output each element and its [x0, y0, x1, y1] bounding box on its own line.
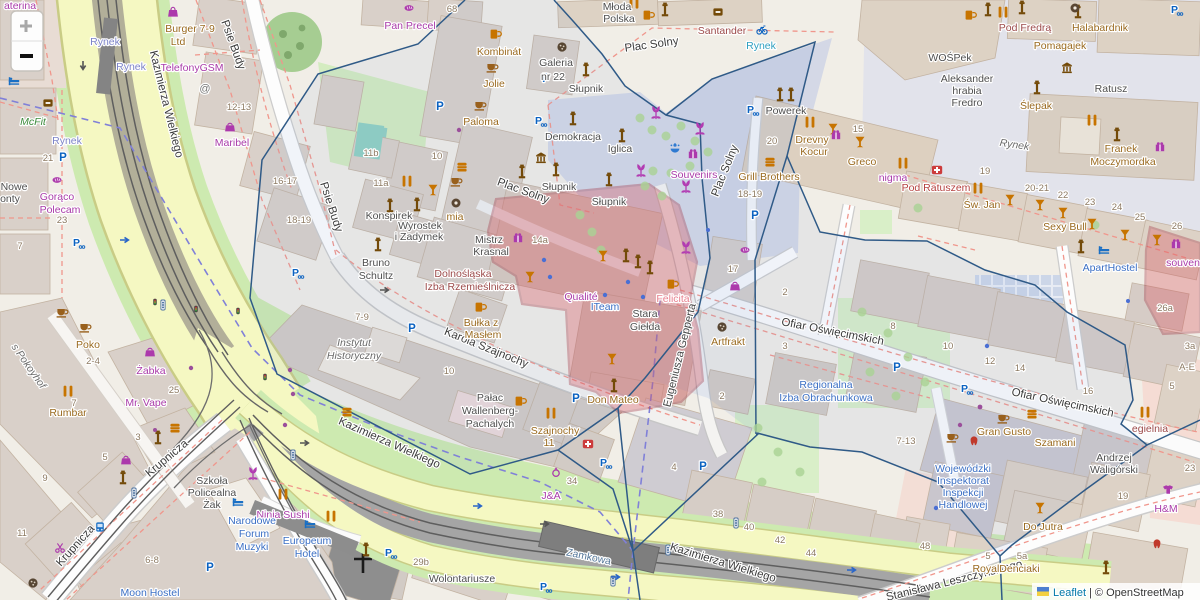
svg-text:Grill Brothers: Grill Brothers	[738, 171, 799, 183]
svg-text:5: 5	[985, 551, 990, 562]
svg-text:Santander: Santander	[698, 25, 747, 37]
svg-text:Żabka: Żabka	[136, 364, 165, 377]
svg-text:6-8: 6-8	[145, 555, 159, 566]
svg-text:Jolie: Jolie	[483, 78, 505, 90]
svg-text:Poko: Poko	[76, 339, 100, 351]
svg-text:7-13: 7-13	[896, 436, 915, 447]
svg-text:Kombinát: Kombinát	[477, 46, 521, 58]
svg-text:Paloma: Paloma	[463, 116, 499, 128]
svg-text:3a: 3a	[1185, 341, 1196, 352]
svg-text:19: 19	[980, 166, 991, 177]
svg-text:11b: 11b	[363, 148, 378, 159]
svg-text:Polska: Polska	[603, 13, 635, 25]
svg-text:23: 23	[57, 215, 68, 226]
svg-text:Ltd: Ltd	[171, 36, 186, 48]
svg-text:aterina: aterina	[4, 0, 36, 12]
svg-text:Moon Hostel: Moon Hostel	[121, 587, 180, 599]
svg-text:Szamani: Szamani	[1035, 437, 1076, 449]
svg-text:Handlowej: Handlowej	[938, 499, 987, 511]
svg-text:Rynek: Rynek	[746, 40, 777, 52]
svg-text:16-17: 16-17	[273, 176, 297, 187]
svg-text:Izba Rzemieślnicza: Izba Rzemieślnicza	[425, 281, 516, 293]
svg-text:5: 5	[1169, 381, 1174, 392]
svg-text:Pan Precel: Pan Precel	[384, 20, 435, 32]
svg-text:ApartHostel: ApartHostel	[1083, 262, 1138, 274]
svg-text:McFit: McFit	[20, 116, 47, 128]
svg-text:Słupnik: Słupnik	[592, 196, 627, 208]
svg-text:Wallenberg-: Wallenberg-	[462, 405, 519, 417]
svg-text:A-E: A-E	[1179, 362, 1195, 373]
svg-text:Schultz: Schultz	[359, 270, 393, 282]
svg-text:Słupnik: Słupnik	[569, 83, 604, 95]
svg-text:10: 10	[432, 151, 443, 162]
svg-text:Dolnośląska: Dolnośląska	[434, 268, 491, 280]
svg-text:7-9: 7-9	[355, 312, 369, 323]
svg-text:22: 22	[1058, 190, 1069, 201]
svg-text:| © OpenStreetMap: | © OpenStreetMap	[1089, 587, 1184, 599]
svg-text:20: 20	[767, 136, 778, 147]
svg-text:Greco: Greco	[848, 156, 877, 168]
svg-text:nigma: nigma	[879, 172, 908, 184]
svg-text:Inspekcji: Inspekcji	[943, 487, 984, 499]
svg-text:21: 21	[43, 153, 54, 164]
svg-text:Gorąco: Gorąco	[40, 191, 75, 203]
svg-text:Powerek: Powerek	[766, 105, 808, 117]
svg-text:4: 4	[671, 462, 676, 473]
svg-text:3: 3	[135, 432, 140, 443]
svg-text:Kocur: Kocur	[800, 146, 828, 158]
svg-text:Ślepak: Ślepak	[1020, 99, 1053, 112]
svg-text:10: 10	[943, 341, 954, 352]
svg-text:J&A: J&A	[541, 490, 560, 502]
svg-text:Aleksander: Aleksander	[941, 73, 994, 85]
svg-text:44: 44	[806, 548, 817, 559]
svg-text:Żak: Żak	[203, 498, 221, 511]
svg-text:Stara: Stara	[632, 308, 657, 320]
svg-text:Szkoła: Szkoła	[196, 475, 228, 487]
svg-text:H&M: H&M	[1154, 503, 1177, 515]
svg-text:15: 15	[853, 124, 864, 135]
svg-text:onty: onty	[0, 193, 21, 205]
svg-text:Gran Gusto: Gran Gusto	[977, 426, 1031, 438]
svg-text:WOŚPek: WOŚPek	[928, 51, 972, 64]
svg-text:10: 10	[444, 366, 455, 377]
svg-text:26a: 26a	[1157, 303, 1174, 314]
svg-text:Halabardnik: Halabardnik	[1072, 22, 1129, 34]
svg-text:Pomagajek: Pomagajek	[1034, 40, 1087, 52]
svg-text:Maribel: Maribel	[215, 137, 249, 149]
svg-text:souven: souven	[1166, 257, 1200, 269]
svg-text:19: 19	[1118, 491, 1129, 502]
svg-text:48: 48	[920, 541, 931, 552]
svg-text:egielnia: egielnia	[1132, 423, 1168, 435]
svg-text:Krasnal: Krasnal	[473, 246, 509, 258]
svg-text:18-19: 18-19	[738, 189, 762, 200]
svg-text:nr 22: nr 22	[541, 71, 565, 83]
svg-text:8: 8	[890, 321, 895, 332]
svg-text:18-19: 18-19	[287, 215, 311, 226]
svg-text:7: 7	[17, 241, 22, 252]
svg-text:Demokracja: Demokracja	[545, 131, 601, 143]
svg-text:Regionalna: Regionalna	[799, 379, 852, 391]
svg-text:Hotel: Hotel	[295, 548, 320, 560]
svg-text:mia: mia	[447, 211, 464, 223]
svg-text:Galeria: Galeria	[539, 57, 573, 69]
svg-text:Iglica: Iglica	[608, 143, 633, 155]
svg-text:Inspektorat: Inspektorat	[937, 475, 989, 487]
svg-text:11a: 11a	[373, 178, 389, 189]
svg-text:Pałac: Pałac	[477, 392, 503, 404]
svg-text:Sexy Bull: Sexy Bull	[1043, 221, 1087, 233]
svg-text:14: 14	[1015, 363, 1026, 374]
svg-text:7: 7	[71, 398, 76, 409]
svg-text:i Zadymek: i Zadymek	[395, 231, 444, 243]
svg-text:Muzyki: Muzyki	[236, 541, 269, 553]
svg-text:Św. Jan: Św. Jan	[964, 198, 1001, 211]
svg-text:Izba Obrachunkowa: Izba Obrachunkowa	[779, 392, 873, 404]
svg-text:Waligórski: Waligórski	[1090, 464, 1138, 476]
svg-text:Rumbar: Rumbar	[49, 407, 87, 419]
svg-text:Don Mateo: Don Mateo	[587, 394, 639, 406]
svg-text:TelefonyGSM: TelefonyGSM	[160, 62, 223, 74]
svg-text:Nowe: Nowe	[1, 181, 28, 193]
svg-text:26: 26	[1172, 221, 1183, 232]
svg-text:Rynek: Rynek	[90, 36, 121, 48]
svg-text:Szajnochy: Szajnochy	[531, 425, 580, 437]
svg-text:Burger 7-9: Burger 7-9	[165, 23, 215, 35]
svg-text:Mistrz: Mistrz	[475, 234, 503, 246]
svg-text:RoyalDenciaki: RoyalDenciaki	[972, 563, 1039, 575]
svg-text:38: 38	[713, 509, 724, 520]
svg-text:Ratusz: Ratusz	[1095, 83, 1128, 95]
svg-text:24: 24	[1112, 202, 1123, 213]
svg-text:Instytut: Instytut	[337, 337, 372, 349]
svg-text:Narodowe: Narodowe	[228, 515, 276, 527]
svg-text:Do Jutra: Do Jutra	[1023, 521, 1063, 533]
svg-text:Franek: Franek	[1105, 143, 1138, 155]
svg-text:11: 11	[544, 437, 555, 449]
svg-text:hrabia: hrabia	[952, 85, 981, 97]
svg-text:3: 3	[782, 341, 787, 352]
svg-text:Drevny: Drevny	[795, 134, 829, 146]
svg-text:34: 34	[567, 476, 578, 487]
svg-text:Souvenirs: Souvenirs	[671, 169, 718, 181]
svg-text:Fredro: Fredro	[952, 97, 983, 109]
svg-text:Artfrakt: Artfrakt	[711, 336, 745, 348]
svg-text:Forum: Forum	[239, 528, 270, 540]
svg-text:Leaflet: Leaflet	[1053, 587, 1086, 599]
svg-text:25: 25	[169, 385, 180, 396]
svg-text:Felicita: Felicita	[656, 293, 689, 305]
svg-text:29b: 29b	[413, 557, 429, 568]
svg-text:2: 2	[782, 287, 787, 298]
svg-text:9: 9	[42, 473, 47, 484]
svg-text:Masłem: Masłem	[465, 329, 502, 341]
svg-text:Pod Fredrą: Pod Fredrą	[999, 22, 1052, 34]
svg-text:5a: 5a	[1017, 551, 1028, 562]
svg-text:Bułka z: Bułka z	[464, 317, 498, 329]
svg-text:Wolontariusze: Wolontariusze	[429, 573, 495, 585]
svg-text:Policealna: Policealna	[188, 487, 237, 499]
svg-text:Historyczny: Historyczny	[327, 350, 382, 362]
svg-text:16: 16	[1083, 386, 1094, 397]
svg-text:Giełda: Giełda	[630, 321, 661, 333]
svg-text:Wojewódzki: Wojewódzki	[935, 463, 991, 475]
svg-text:23: 23	[1085, 197, 1096, 208]
svg-text:14a: 14a	[532, 235, 549, 246]
svg-text:Pachalych: Pachalych	[466, 418, 515, 430]
svg-text:Słupnik: Słupnik	[542, 181, 577, 193]
svg-text:Mr. Vape: Mr. Vape	[125, 397, 166, 409]
svg-text:40: 40	[744, 522, 755, 533]
svg-text:Europeum: Europeum	[283, 535, 332, 547]
svg-text:Rynek: Rynek	[52, 135, 83, 147]
svg-text:12-13: 12-13	[227, 102, 251, 113]
svg-text:23: 23	[1185, 463, 1196, 474]
svg-text:Młoda: Młoda	[603, 1, 632, 13]
svg-text:2-4: 2-4	[86, 356, 100, 367]
svg-text:25: 25	[1135, 212, 1146, 223]
svg-text:Moczymordka: Moczymordka	[1090, 156, 1156, 168]
svg-text:Andrzej: Andrzej	[1096, 452, 1132, 464]
svg-text:12: 12	[985, 356, 996, 367]
svg-text:ITeam: ITeam	[591, 301, 620, 313]
svg-text:Pod Ratuszem: Pod Ratuszem	[902, 182, 971, 194]
svg-text:20-21: 20-21	[1025, 183, 1049, 194]
svg-text:11: 11	[17, 528, 27, 539]
svg-text:2: 2	[719, 391, 724, 402]
svg-text:@: @	[199, 83, 210, 95]
svg-text:Rynek: Rynek	[116, 61, 147, 73]
svg-text:68: 68	[447, 4, 458, 15]
svg-text:17: 17	[728, 264, 739, 275]
svg-text:5: 5	[102, 452, 107, 463]
svg-text:42: 42	[775, 535, 786, 546]
svg-text:Bruno: Bruno	[362, 257, 390, 269]
